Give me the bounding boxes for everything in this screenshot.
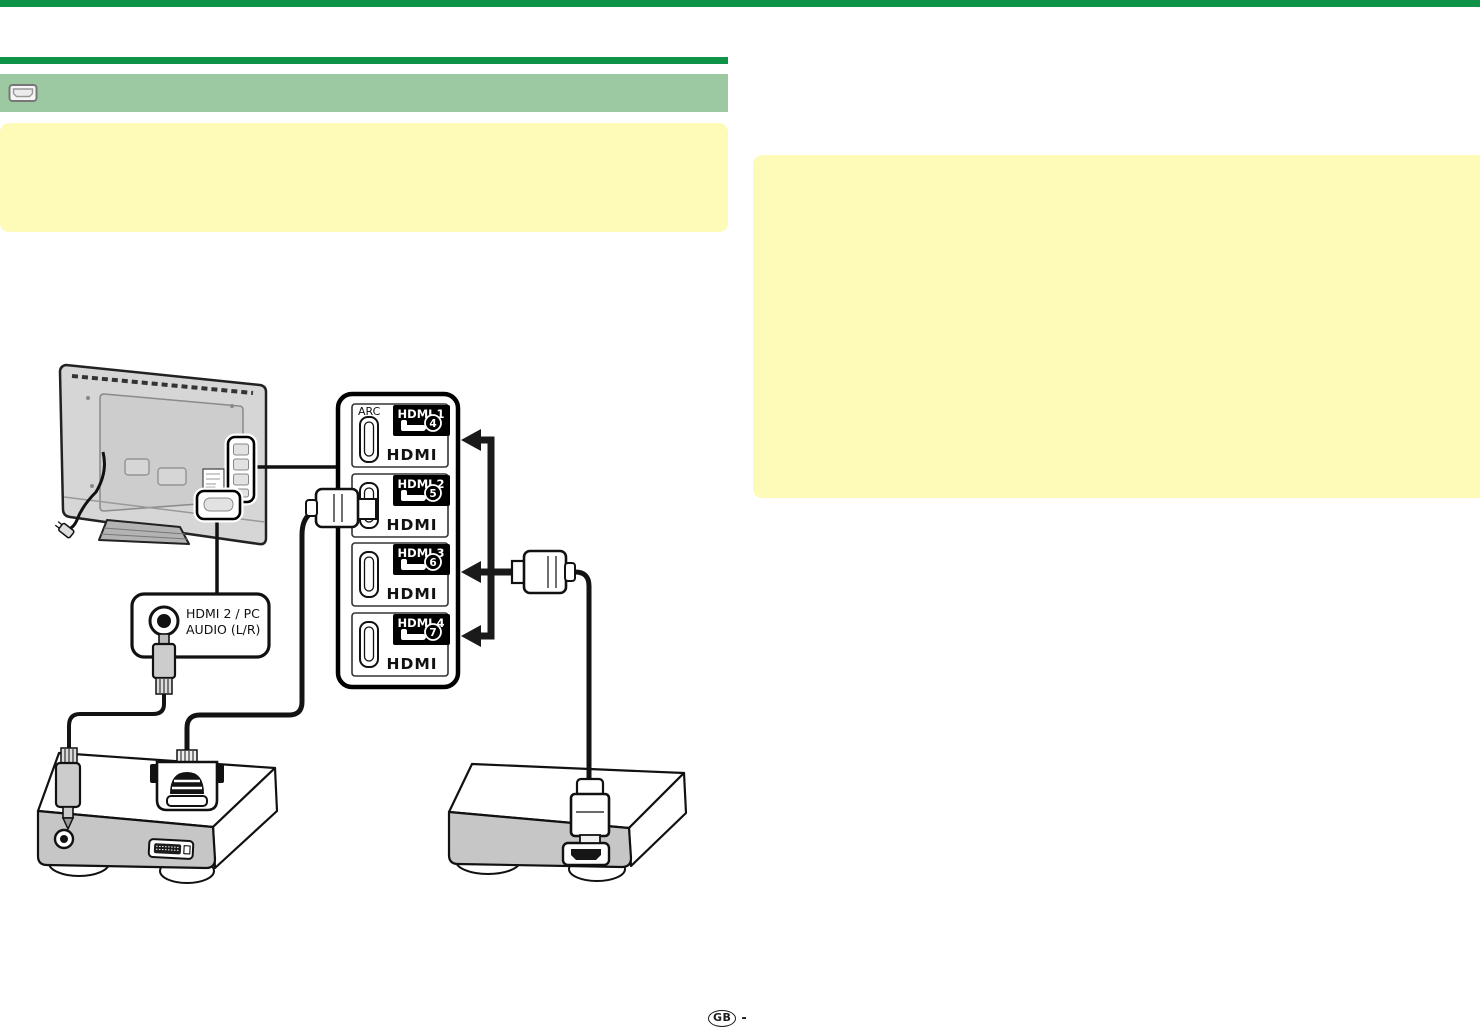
hdmi1-jack-number: 4 [429,418,436,430]
region-code-badge: GB [708,1010,736,1027]
hdmi4-logo: HDMI [386,655,437,673]
dvi-port [149,839,194,859]
audio-terminal-label-line2: AUDIO (L/R) [186,622,260,637]
audio-terminal-label-line1: HDMI 2 / PC [186,606,260,621]
hdmi-terminal-panel: ARC HDMI 1 4 HDMI HDMI 2 [338,394,458,687]
hdmi-plug-vertical [571,779,609,843]
manual-page: HDMI 2 / PC AUDIO (L/R) ARC HDMI 1 4 HDM… [0,0,1480,1034]
hdmi2-jack-number: 5 [429,488,436,500]
audio-plug-terminal [153,634,175,694]
panel-port-hdmi4: HDMI 4 7 HDMI [352,613,450,676]
hdmi4-jack-number: 7 [429,627,436,639]
arrow-to-hdmi3 [461,561,481,583]
power-plug [54,520,75,539]
hdmi3-logo: HDMI [386,585,437,603]
connection-arrows [461,429,512,647]
panel-port-hdmi1: ARC HDMI 1 4 HDMI [352,404,450,467]
hdmi-out-port [563,843,609,865]
arrow-to-hdmi4 [461,625,481,647]
page-footer: GB - [708,1010,747,1027]
bottom-terminal-highlight [197,491,240,519]
hdmi-plug-horizontal [512,551,575,593]
panel-port-hdmi3: HDMI 3 6 HDMI [352,543,450,606]
hdmi-device-box [449,764,686,881]
audio-cable [69,694,164,750]
hdmi2-logo: HDMI [386,516,437,534]
connection-diagram: HDMI 2 / PC AUDIO (L/R) ARC HDMI 1 4 HDM… [0,0,1480,1034]
arrow-to-hdmi1 [461,429,481,451]
hdmi3-jack-number: 6 [429,557,436,569]
hdmi1-logo: HDMI [386,446,437,464]
hdmi-cable [575,572,589,782]
footer-separator: - [741,1011,746,1026]
